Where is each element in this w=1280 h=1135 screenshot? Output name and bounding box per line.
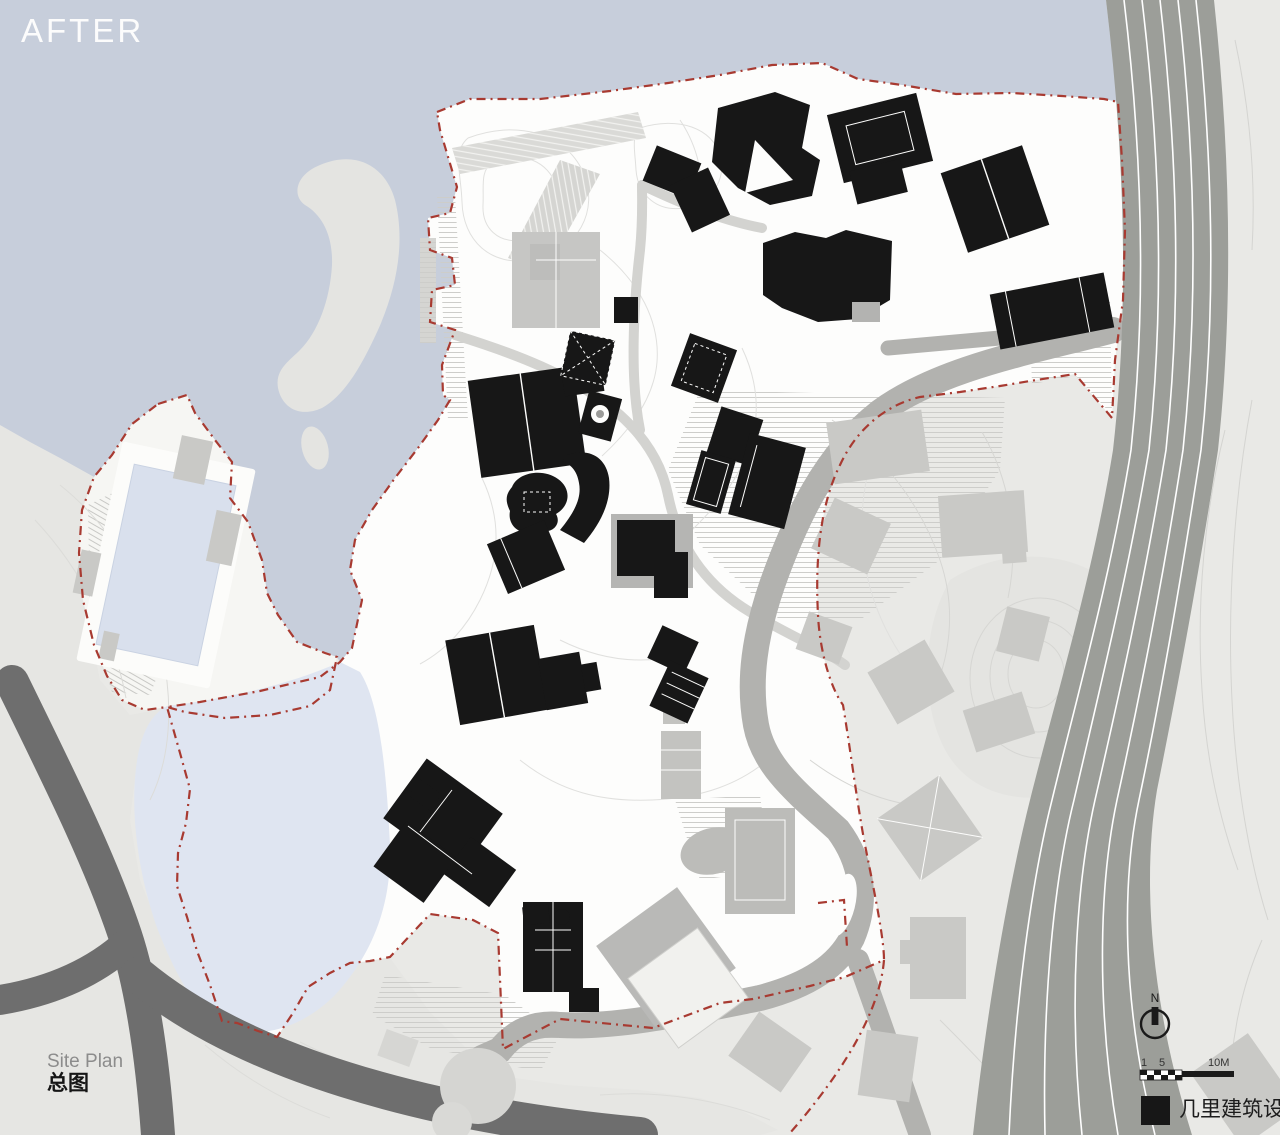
legend-swatch	[1141, 1096, 1170, 1125]
legend-firm-label: 几里建筑设计	[1179, 1098, 1280, 1122]
svg-text:10M: 10M	[1208, 1057, 1229, 1069]
svg-text:1: 1	[1141, 1057, 1147, 1069]
legend: 几里建筑设计	[1141, 1096, 1280, 1125]
caption-en: Site Plan	[47, 1051, 123, 1073]
compass-needle	[1152, 1007, 1159, 1025]
svg-text:5: 5	[1159, 1057, 1165, 1069]
north-label: N	[1151, 991, 1160, 1005]
caption-zh: 总图	[47, 1072, 89, 1096]
phase-title: AFTER	[21, 12, 144, 50]
site-plan-drawing: N 1 5 10M	[0, 0, 1280, 1135]
site-plan-canvas: N 1 5 10M AFTER Site Plan 总图 几里建筑设计	[0, 0, 1280, 1135]
